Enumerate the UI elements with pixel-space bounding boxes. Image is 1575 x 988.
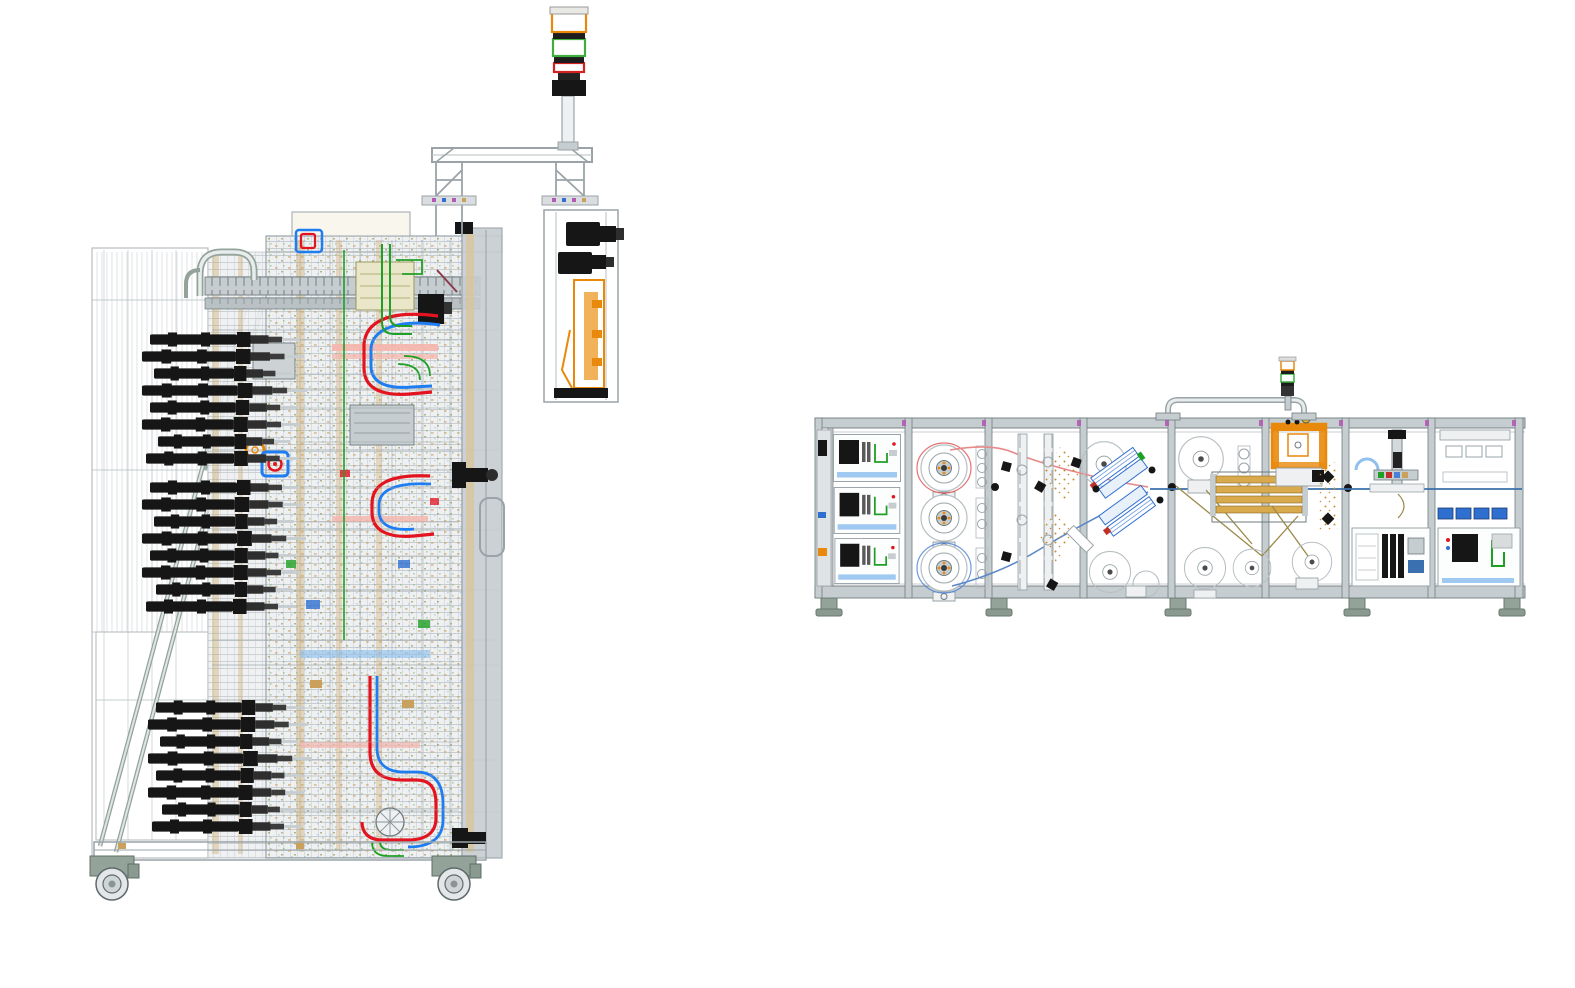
bay-vertical-tracks: [1001, 434, 1082, 591]
bay-unwind-spools: [917, 443, 988, 601]
cabinet-bay7: [1352, 528, 1430, 586]
machine-foot: [1499, 598, 1525, 616]
web-paths: [950, 447, 1522, 586]
small-tower-segment-green: [1281, 374, 1294, 382]
flange-right: [542, 196, 598, 205]
electrical-module: [834, 435, 901, 482]
bay-electrical-outfeed: [1438, 430, 1520, 586]
orange-chip: [818, 548, 827, 556]
flange-left: [422, 196, 476, 205]
tower-cap: [550, 7, 588, 14]
tower-segment-green: [553, 39, 585, 56]
fixture-roller: [1292, 542, 1331, 581]
small-tower-base: [1281, 386, 1294, 396]
scatter-dots-lower: [1038, 510, 1074, 562]
left-machine-view[interactable]: [90, 7, 624, 900]
flange-bolts: [432, 198, 586, 202]
connector-top: [455, 222, 473, 234]
right-machine-view[interactable]: [815, 357, 1525, 616]
orange-fixture: [1272, 424, 1326, 468]
machine-foot: [816, 598, 842, 616]
cabinet-bay8: [1438, 528, 1520, 586]
roof-box: [292, 212, 410, 236]
tower-segment-amber: [552, 13, 586, 32]
electrical-module: [834, 487, 900, 533]
machine-foot: [1344, 598, 1370, 616]
cad-viewport: [0, 0, 1575, 988]
bay-assembly-mechanism: [1352, 430, 1430, 586]
machine-foot: [986, 598, 1012, 616]
signal-tower: [550, 7, 588, 150]
bay-roller-stations: [1176, 437, 1308, 598]
camera-column-base: [554, 388, 608, 398]
small-tower-segment-amber: [1281, 361, 1294, 370]
tower-segment-red: [554, 63, 584, 72]
blue-block-row: [1438, 508, 1507, 519]
bay-electrical-cabinets: [817, 430, 901, 586]
machine-foot: [1165, 598, 1191, 616]
caster-wheel-left: [90, 856, 139, 900]
overhead-arch: [1156, 400, 1316, 420]
station-roller-top: [1179, 437, 1224, 482]
camera-column[interactable]: [544, 210, 624, 402]
tower-base: [552, 80, 586, 96]
caster-wheel-right: [432, 856, 481, 900]
cad-drawing: [0, 0, 1575, 988]
station-roller-bottom-left: [1184, 547, 1225, 588]
electrical-module: [835, 538, 899, 583]
